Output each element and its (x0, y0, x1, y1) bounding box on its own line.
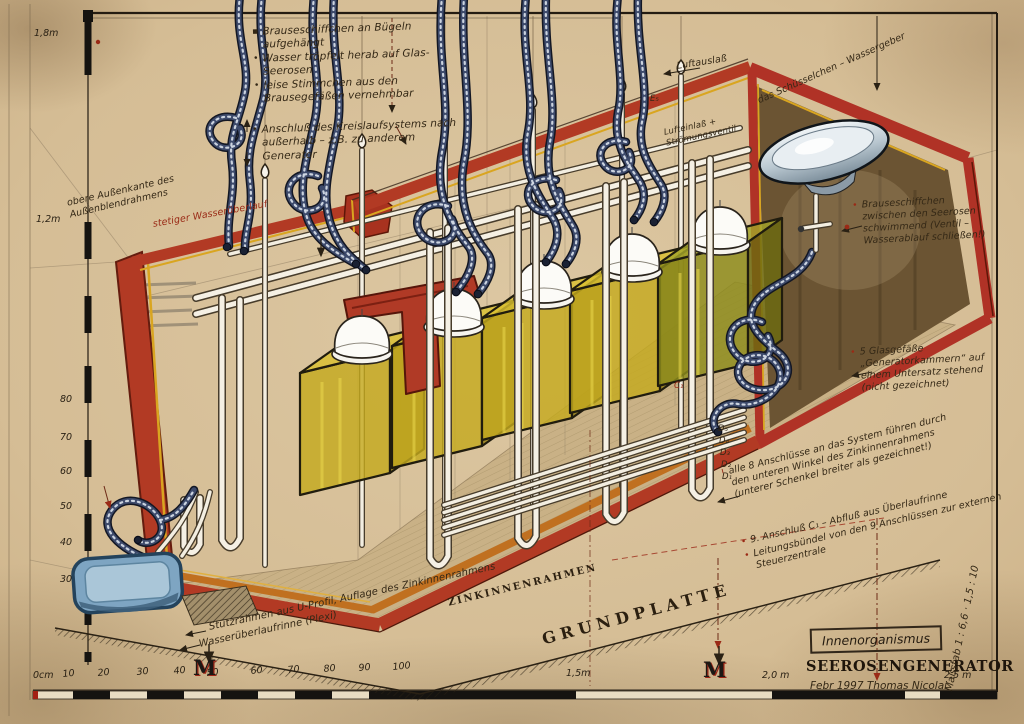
overflow-tray (72, 552, 184, 615)
drawing-svg (0, 0, 1024, 724)
artwork-seerosengenerator: ▪ Brauseschiffchen an Bügeln aufgehängt … (0, 0, 1024, 724)
ground-plate-line (55, 560, 940, 701)
